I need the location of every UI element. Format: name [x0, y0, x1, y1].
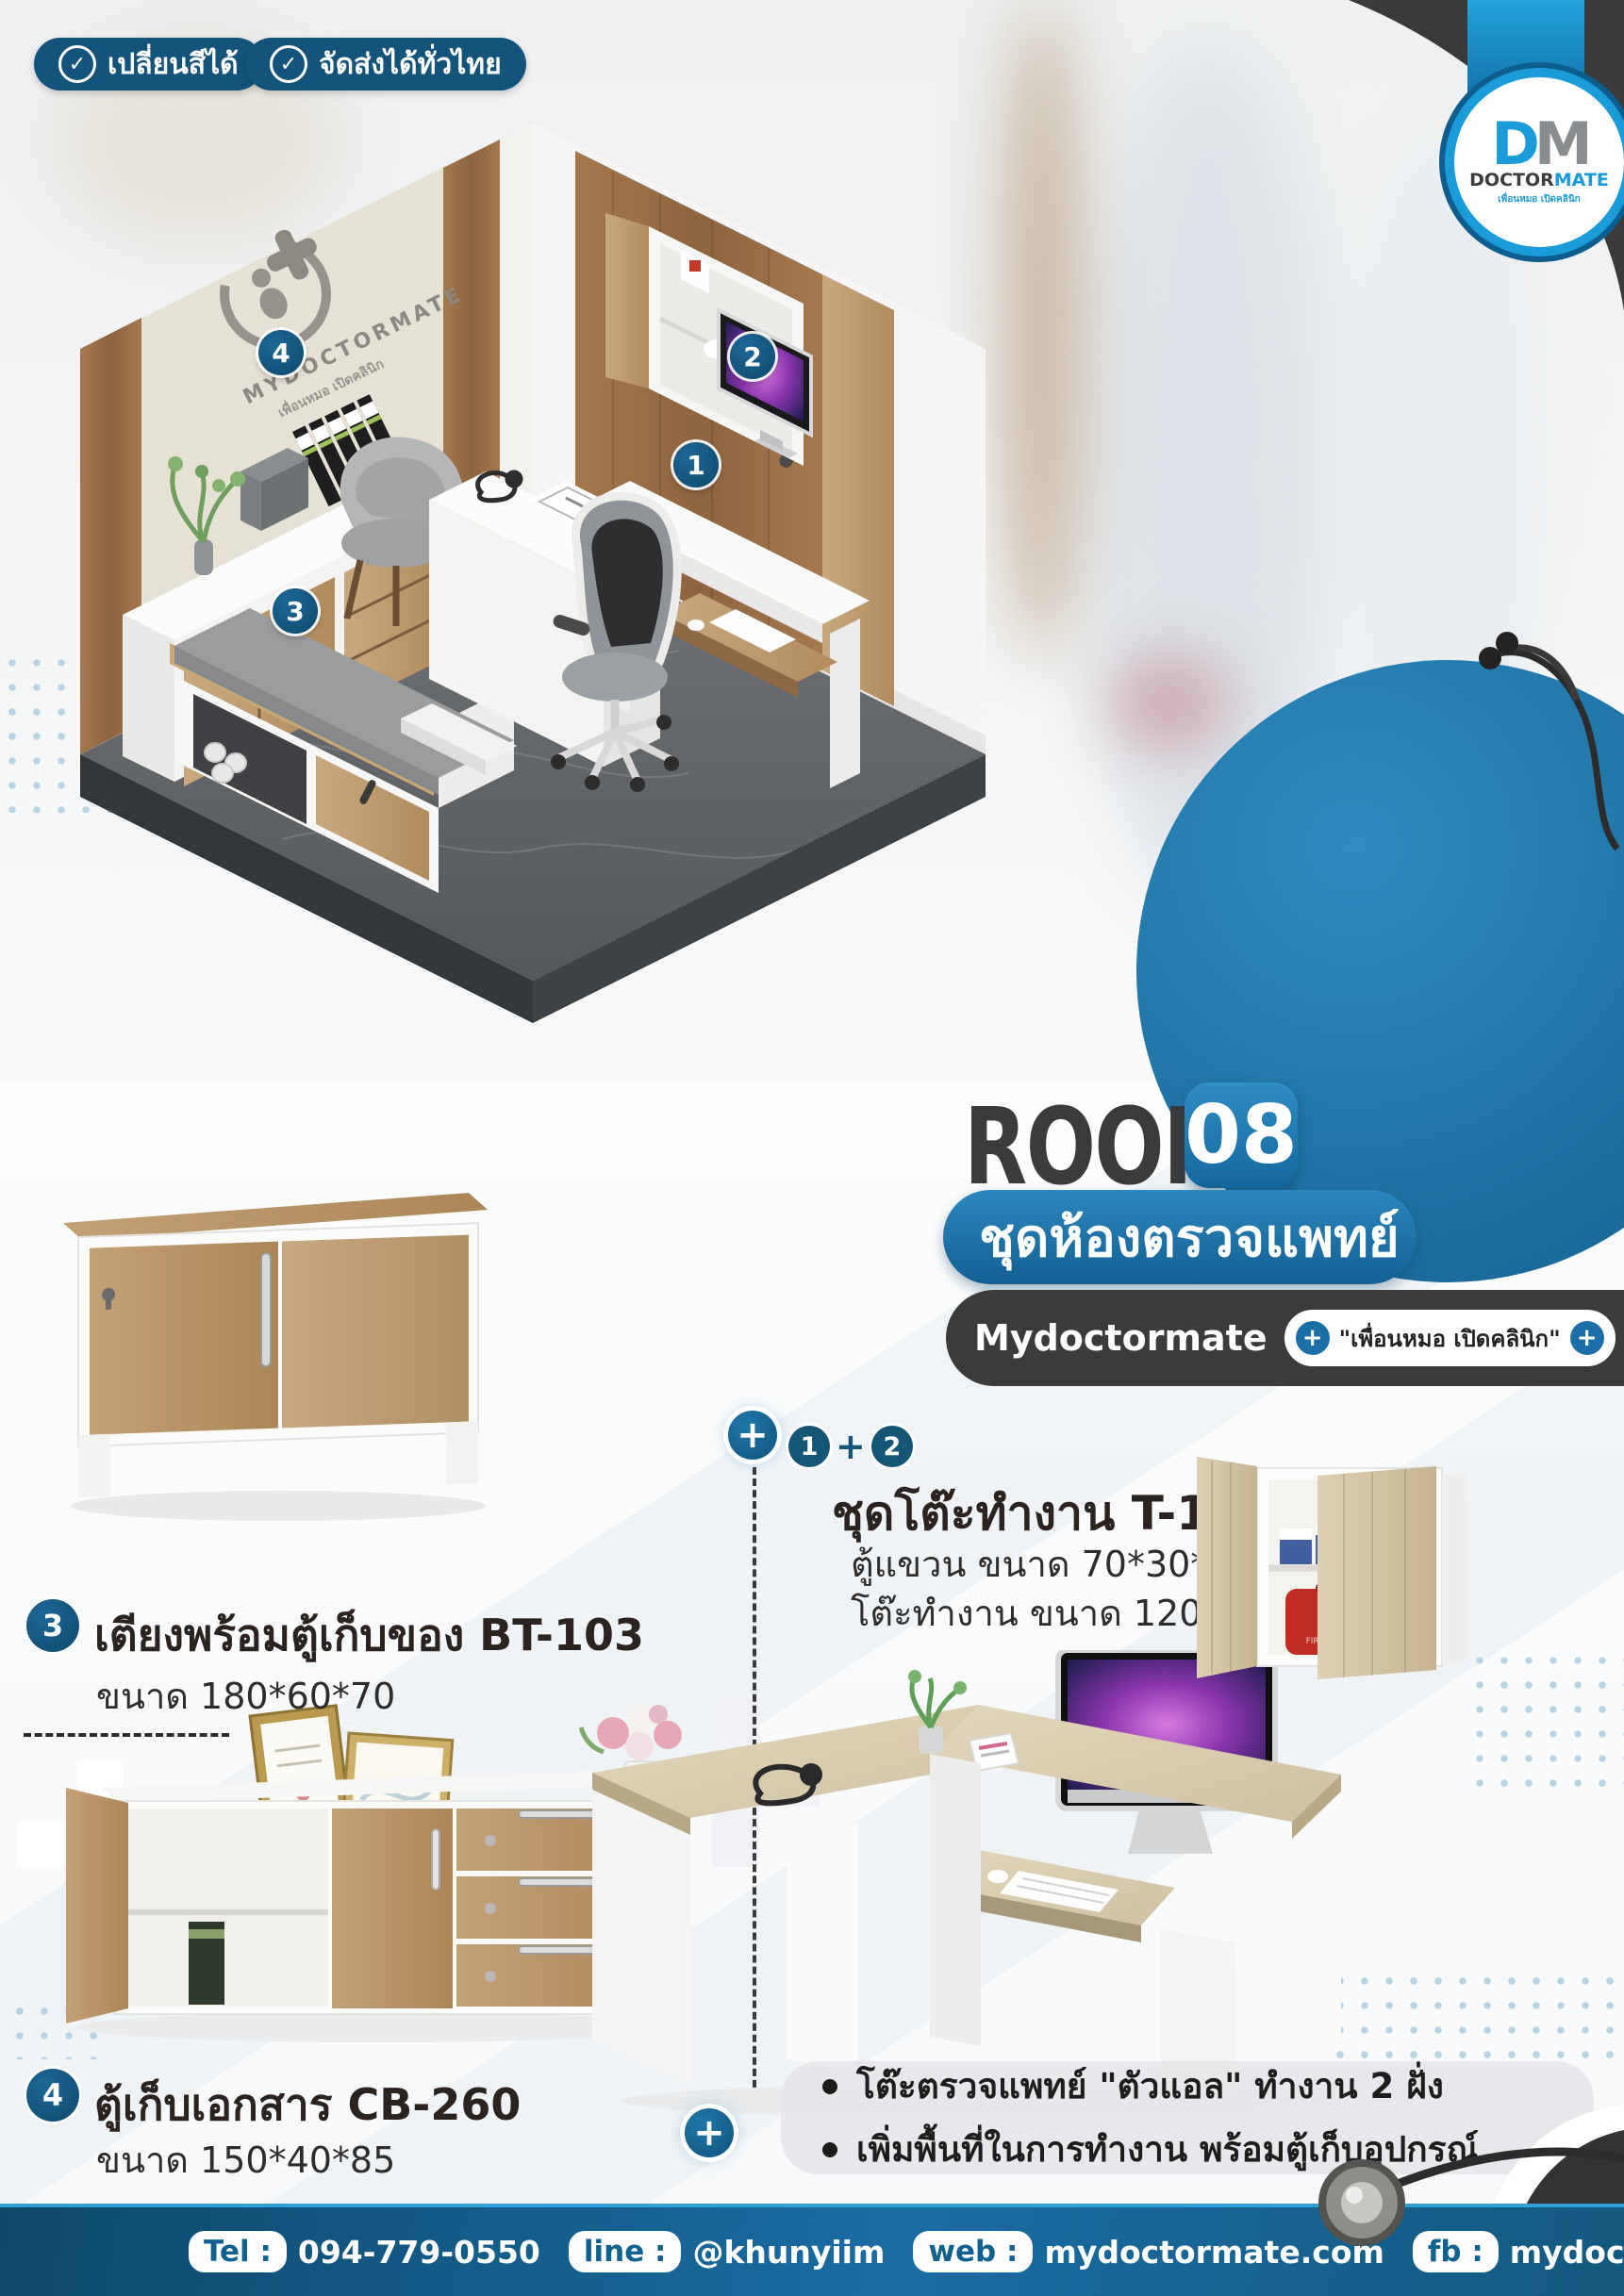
- feature-badge-delivery: ✓ จัดส่งได้ทั่วไทย: [245, 38, 526, 91]
- plus-node-icon: +: [685, 2108, 734, 2157]
- footer-line: line : @khunyiim: [569, 2231, 886, 2272]
- web-label-pill: web :: [913, 2231, 1033, 2272]
- dot-grid-decoration: [1467, 1648, 1624, 1788]
- line-value: @khunyiim: [692, 2234, 885, 2271]
- dm-monogram-icon: DM: [1491, 118, 1586, 171]
- monogram-m: M: [1534, 109, 1587, 178]
- brand-name: Mydoctormate: [974, 1317, 1268, 1359]
- line-label-pill: line :: [569, 2231, 682, 2272]
- t109-desk-photo: [575, 1650, 1386, 2122]
- doctormate-logo: DM DOCTORMATE เพื่อนหมอ เปิดคลินิก: [1445, 68, 1624, 256]
- feature-badge-delivery-label: จัดส่งได้ทั่วไทย: [319, 42, 502, 87]
- logo-name: DOCTORMATE: [1469, 170, 1609, 190]
- logo-tagline: เพื่อนหมอ เปิดคลินิก: [1498, 192, 1581, 206]
- cb260-title: ตู้เก็บเอกสาร CB-260: [94, 2071, 521, 2139]
- room-subtitle-banner: ชุดห้องตรวจแพทย์: [943, 1190, 1417, 1284]
- logo-name-mate: MATE: [1554, 170, 1609, 190]
- tel-label-pill: Tel :: [189, 2231, 287, 2272]
- stethoscope-bottom-icon: [1264, 2103, 1624, 2296]
- brand-bar: Mydoctormate + "เพื่อนหมอ เปิดคลินิก" +: [946, 1290, 1624, 1386]
- room-number-badge: 08: [1185, 1082, 1298, 1188]
- monogram-d: D: [1491, 109, 1533, 178]
- stethoscope-top-icon: [1452, 613, 1624, 858]
- tel-value: 094-779-0550: [298, 2234, 540, 2271]
- cb260-size: ขนาด 150*40*85: [96, 2131, 395, 2189]
- dashed-separator: [24, 1733, 229, 1737]
- isometric-room-render: MYDOCTORMATE เพื่อนหมอ เปิดคลินิก: [0, 57, 1037, 1037]
- set12-badge-1: 1: [788, 1426, 830, 1467]
- set12-badge-2: 2: [871, 1426, 913, 1467]
- left-open-door: [1197, 1457, 1257, 1678]
- poster-page: MYDOCTORMATE เพื่อนหมอ เปิดคลินิก: [0, 0, 1624, 2296]
- feature-badge-color-label: เปลี่ยนสีได้: [108, 42, 239, 87]
- bt103-size: ขนาด 180*60*70: [96, 1667, 395, 1725]
- open-door-and-interior: [66, 1788, 328, 2023]
- bt103-title: เตียงพร้อมตู้เก็บของ BT-103: [94, 1601, 644, 1670]
- cb260-number-badge: 4: [26, 2069, 79, 2122]
- check-icon: ✓: [270, 45, 307, 83]
- room-marker-1: 1: [673, 442, 719, 487]
- bullet-icon: [822, 2142, 837, 2157]
- plus-icon: +: [1296, 1321, 1330, 1355]
- t109-wall-cabinet-photo: FIRST AID KIT: [1174, 1447, 1476, 1688]
- hallway-detail-blur: [1113, 660, 1226, 745]
- brand-tag-pill: + "เพื่อนหมอ เปิดคลินิก" +: [1284, 1310, 1616, 1366]
- room-marker-3: 3: [273, 588, 318, 634]
- footer-tel: Tel : 094-779-0550: [189, 2231, 540, 2272]
- bullet-icon: [822, 2079, 837, 2094]
- right-open-door: [1317, 1466, 1436, 1679]
- set12-number-badges: 1 + 2: [788, 1426, 913, 1467]
- room-marker-4: 4: [258, 330, 304, 375]
- set12-plus-icon: +: [836, 1426, 866, 1467]
- plus-icon: +: [1570, 1321, 1604, 1355]
- desk-leg-left: [592, 1790, 690, 2084]
- bt103-number-badge: 3: [26, 1599, 79, 1652]
- wall-cabinet-open-door: [605, 213, 649, 388]
- bt103-product-photo: [52, 1155, 505, 1532]
- feature-badge-color: ✓ เปลี่ยนสีได้: [34, 38, 263, 91]
- check-icon: ✓: [58, 45, 96, 83]
- room-marker-2: 2: [730, 334, 775, 379]
- logo-name-doctor: DOCTOR: [1469, 170, 1554, 190]
- brand-tag-text: "เพื่อนหมอ เปิดคลินิก": [1339, 1320, 1561, 1357]
- plus-node-icon: +: [728, 1411, 777, 1460]
